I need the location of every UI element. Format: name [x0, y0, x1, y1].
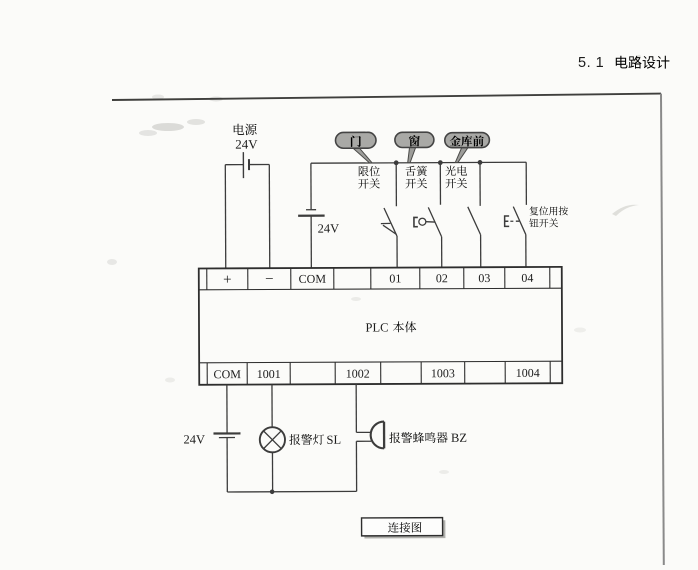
svg-text:1004: 1004: [516, 366, 540, 380]
svg-text:COM: COM: [299, 272, 327, 286]
svg-text:PLC: PLC: [365, 320, 388, 334]
svg-text:1003: 1003: [431, 366, 455, 380]
svg-text:1001: 1001: [257, 367, 281, 381]
svg-text:04: 04: [521, 271, 533, 285]
svg-text:BZ: BZ: [451, 431, 467, 445]
svg-text:03: 03: [478, 271, 490, 285]
svg-text:24V: 24V: [318, 221, 340, 235]
svg-text:24V: 24V: [183, 432, 205, 446]
svg-text:01: 01: [389, 271, 401, 285]
svg-text:−: −: [265, 271, 274, 287]
svg-text:24V: 24V: [235, 137, 258, 152]
svg-text:SL: SL: [326, 433, 341, 447]
svg-text:COM: COM: [214, 367, 242, 381]
svg-text:02: 02: [436, 271, 448, 285]
svg-text:+: +: [223, 272, 232, 288]
svg-text:1002: 1002: [346, 367, 370, 381]
svg-text:5. 1: 5. 1: [578, 55, 604, 71]
